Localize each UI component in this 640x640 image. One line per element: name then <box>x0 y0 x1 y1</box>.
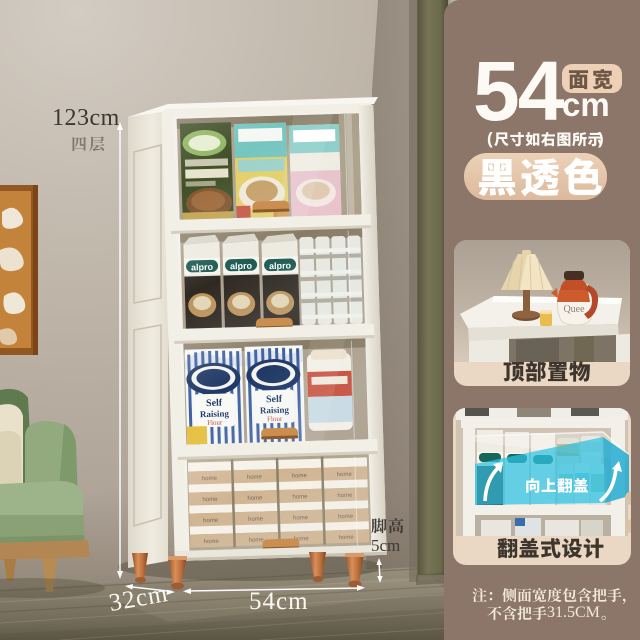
svg-text:Quee: Quee <box>563 304 585 315</box>
